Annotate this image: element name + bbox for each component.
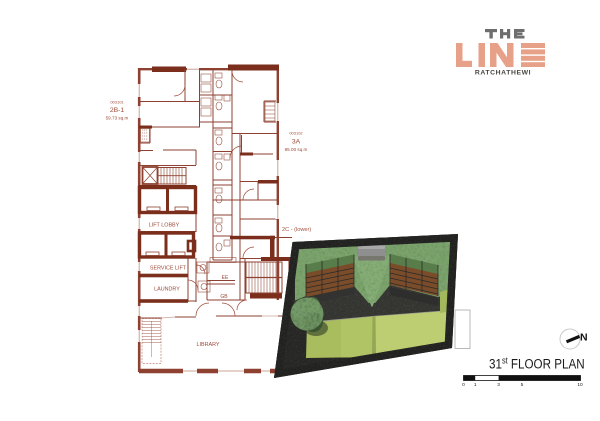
- svg-text:3A: 3A: [292, 139, 301, 146]
- svg-text:2C - (lower): 2C - (lower): [282, 227, 311, 233]
- svg-text:0: 0: [462, 382, 465, 388]
- svg-text:SERVICE LIFT: SERVICE LIFT: [150, 266, 187, 272]
- svg-text:3: 3: [497, 382, 500, 388]
- svg-text:2B-1: 2B-1: [110, 107, 125, 114]
- svg-text:59.73 sq.m: 59.73 sq.m: [106, 116, 129, 121]
- svg-text:N: N: [580, 332, 588, 344]
- svg-text:85.00 sq.m: 85.00 sq.m: [285, 147, 308, 152]
- svg-text:003102: 003102: [289, 131, 303, 136]
- svg-text:RATCHATHEWI: RATCHATHEWI: [475, 70, 531, 77]
- svg-text:10: 10: [577, 382, 583, 388]
- svg-text:GB: GB: [220, 294, 228, 300]
- svg-text:LAUNDRY: LAUNDRY: [154, 287, 180, 293]
- svg-text:1: 1: [474, 382, 477, 388]
- svg-text:5: 5: [521, 382, 524, 388]
- svg-text:LIFT LOBBY: LIFT LOBBY: [149, 223, 180, 229]
- svg-text:003101: 003101: [110, 100, 124, 105]
- svg-text:LIBRARY: LIBRARY: [197, 342, 220, 348]
- svg-text:31st FLOOR PLAN: 31st FLOOR PLAN: [489, 355, 585, 371]
- svg-text:EE: EE: [222, 275, 229, 281]
